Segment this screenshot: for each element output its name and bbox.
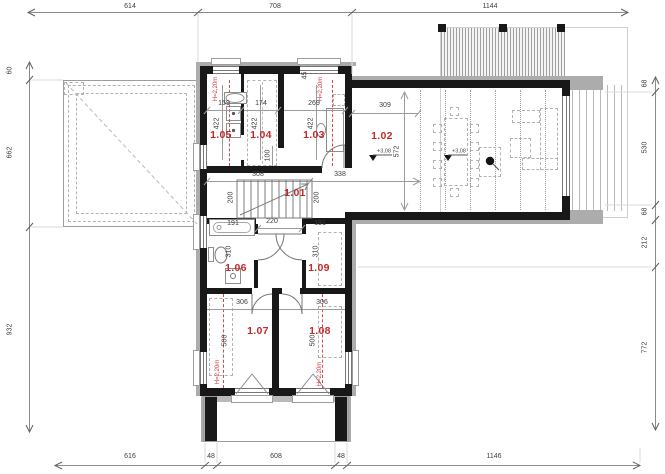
height-note: H=2,20m — [212, 69, 220, 109]
dim-hall-a: 308 — [240, 171, 276, 178]
room-label-105: 1.05 — [201, 129, 241, 141]
dimension-lines — [28, 13, 656, 466]
dim-right-4: 212 — [641, 225, 650, 261]
room-label-102: 1.02 — [362, 130, 402, 142]
dim-hall-b: 338 — [322, 171, 358, 178]
dim-bottom-5: 1146 — [476, 453, 512, 460]
dim-left-2: 662 — [6, 135, 15, 171]
level-markers: +3,08 +3,08 — [369, 149, 467, 162]
room-label-108: 1.08 — [300, 325, 340, 337]
dim-w108: 306 — [304, 299, 340, 306]
height-note: H=2,20m — [214, 352, 222, 392]
dim-hall-h: 200 — [227, 180, 236, 216]
dim-left-1: 60 — [6, 53, 15, 89]
dim-bottom-1: 616 — [112, 453, 148, 460]
dim-arrows — [26, 9, 659, 469]
dim-w104: 174 — [243, 100, 279, 107]
level-value: +3,08 — [377, 149, 391, 155]
plan-linework: +3,08 +3,08 — [0, 0, 665, 474]
dim-right-2: 530 — [641, 130, 650, 166]
dim-bottom-3: 608 — [258, 453, 294, 460]
room-label-109: 1.09 — [299, 262, 339, 274]
dim-right-5: 772 — [641, 330, 650, 366]
room-label-107: 1.07 — [238, 325, 278, 337]
dim-living-a: 309 — [367, 102, 403, 109]
dim-bottom-4: 48 — [323, 453, 359, 460]
stairs — [237, 180, 312, 218]
room-label-103: 1.03 — [294, 129, 334, 141]
fixtures-linework — [66, 83, 499, 394]
room-label-104: 1.04 — [241, 129, 281, 141]
dim-w107: 306 — [224, 299, 260, 306]
dim-win103: 45 — [301, 58, 310, 94]
dim-bottom-2: 48 — [193, 453, 229, 460]
room-label-106: 1.06 — [216, 262, 256, 274]
height-note: H=2,20m — [317, 69, 325, 109]
dim-top-3: 1144 — [472, 3, 508, 10]
dim-top-2: 708 — [257, 3, 293, 10]
height-note: H=2,20m — [316, 354, 324, 394]
extension-lines — [30, 14, 652, 463]
dim-left-3: 932 — [6, 312, 15, 348]
dim-gap100: 100 — [264, 138, 273, 174]
dim-corridor: 220 — [254, 218, 290, 225]
room-label-101: 1.01 — [275, 187, 315, 199]
dim-w109: 191 — [302, 220, 338, 227]
dim-ticks — [26, 9, 659, 469]
floor-plan-canvas: +3,08 +3,08 1.05 1.04 1.03 1.02 1.01 1.0… — [0, 0, 665, 474]
dim-top-1: 614 — [112, 3, 148, 10]
dim-right-1: 68 — [641, 66, 650, 102]
dim-tub: 191 — [215, 220, 251, 227]
level-value: +3,08 — [452, 149, 466, 155]
